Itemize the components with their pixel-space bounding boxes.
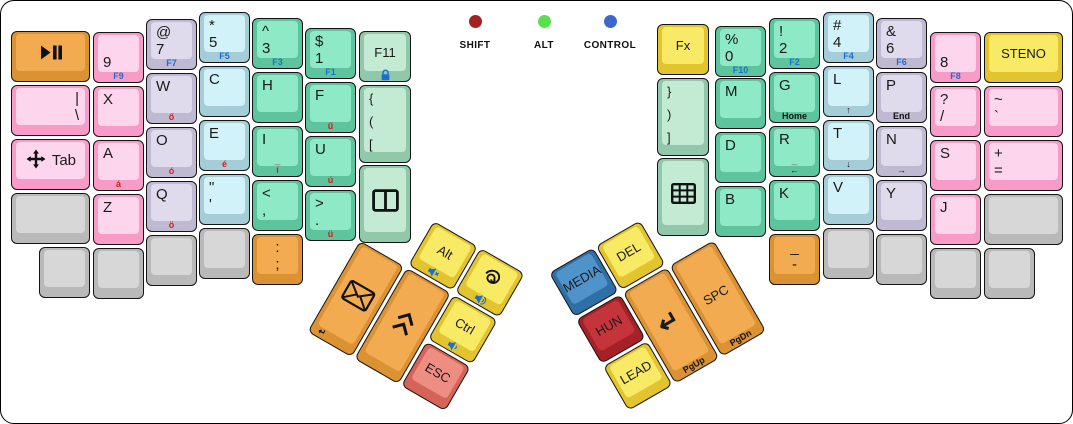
key-blank-rb5-face (989, 251, 1030, 288)
key-fx-legend: Fx (676, 38, 690, 53)
key-star-5-line-0: * (209, 17, 245, 34)
key-ctrl-legend: Ctrl (452, 315, 477, 338)
key-caret-3-front-legend: F3 (253, 58, 302, 68)
key-less-comma-legend: <, (257, 183, 298, 219)
key-h-legend: H (257, 75, 298, 94)
key-n-legend: N (881, 129, 922, 148)
key-hun-legend: HUN (593, 312, 625, 339)
key-at-7-line-0: @ (156, 24, 192, 41)
key-colon-semicolon-face: :; (257, 237, 298, 274)
key-g-line-0: G (779, 77, 815, 94)
key-y[interactable]: Y (876, 180, 927, 231)
key-p-front-legend: End (877, 112, 926, 122)
key-x-legend: X (98, 89, 139, 108)
key-a-legend: A (98, 143, 139, 162)
key-d-face: D (720, 135, 761, 172)
key-caret-3-face: ^3 (257, 21, 298, 58)
key-8-line-0 (940, 37, 976, 54)
key-greater-period-front-legend: ü (306, 230, 355, 240)
key-at-7-line-1: 7 (156, 41, 192, 58)
key-j[interactable]: J (930, 194, 981, 245)
key-y-face: Y (881, 183, 922, 220)
key-l-line-0: L (833, 71, 869, 88)
key-r[interactable]: R_← (769, 126, 820, 177)
key-quote-legend: "' (204, 177, 245, 213)
key-k[interactable]: K (769, 180, 820, 231)
key-percent-0[interactable]: %0F10 (715, 26, 766, 77)
key-f-front-legend: ű (306, 122, 355, 132)
key-pipe-backslash-legend: |\ (16, 88, 85, 124)
key-l[interactable]: L↑ (823, 66, 874, 117)
key-tab[interactable]: Tab (11, 139, 90, 190)
key-blank-right-mod-face (989, 197, 1058, 234)
key-x-line-0: X (103, 91, 139, 108)
key-blank-lb1[interactable] (39, 247, 90, 298)
key-m[interactable]: M (715, 78, 766, 129)
key-o-front-legend: ó (147, 167, 196, 177)
key-hash-4-face: #4 (828, 15, 869, 52)
key-close-brackets-line-1: ) (667, 107, 704, 130)
key-q-line-0: Q (156, 186, 192, 203)
key-z-line-0: Z (103, 199, 139, 216)
key-enter-line-0: ↵ (656, 310, 682, 334)
indicator-control: CONTROL (570, 15, 650, 51)
key-caret-3-line-1: 3 (262, 40, 298, 57)
key-open-brackets-line-1: ( (369, 114, 406, 137)
key-b-legend: B (720, 189, 761, 208)
key-a-line-0: A (103, 145, 139, 162)
key-underscore-dash-line-0: _ (774, 239, 815, 256)
key-l-face: L (828, 69, 869, 106)
key-f[interactable]: Fű (305, 82, 356, 133)
key-underscore-dash[interactable]: _- (769, 234, 820, 285)
key-alt-legend: Alt (435, 242, 456, 263)
key-percent-0-face: %0 (720, 29, 761, 66)
key-underscore-dash-face: _- (774, 237, 815, 274)
key-underscore-dash-legend: _- (774, 237, 815, 273)
key-n[interactable]: N→ (876, 126, 927, 177)
key-m-line-0: M (725, 83, 761, 100)
key-close-brackets[interactable]: })] (657, 78, 709, 156)
key-a[interactable]: Aá (93, 140, 144, 191)
key-d-legend: D (720, 135, 761, 154)
key-y-line-0: Y (886, 185, 922, 202)
key-z[interactable]: Z (93, 194, 144, 245)
key-u-line-0: U (315, 141, 351, 158)
key-blank-left-mod[interactable] (11, 193, 90, 244)
key-8[interactable]: 8F8 (930, 32, 981, 83)
play-pause-icon (16, 34, 85, 71)
key-v-line-0: V (833, 179, 869, 196)
key-enter-legend: ↵ (656, 310, 682, 334)
key-z-face: Z (98, 197, 139, 234)
key-c-line-0: C (209, 71, 245, 88)
key-dollar-1-front-legend: F1 (306, 68, 355, 78)
key-v[interactable]: V (823, 174, 874, 225)
key-pipe-backslash-line-0: | (16, 90, 79, 107)
key-8-front-legend: F8 (931, 72, 980, 82)
key-c-face: C (204, 69, 245, 106)
key-r-face: R_ (774, 129, 815, 166)
key-plus-equals-line-1: = (994, 162, 1058, 179)
key-steno-legend: STENO (1001, 46, 1046, 61)
key-colon-semicolon-line-0: : (257, 239, 298, 256)
key-c[interactable]: C (199, 66, 250, 117)
key-r-hold-legend: _ (774, 157, 815, 165)
key-s-face: S (935, 143, 976, 180)
key-percent-0-front-legend: F10 (716, 66, 765, 76)
key-question-slash[interactable]: ?/ (930, 86, 981, 137)
indicator-control-label: CONTROL (570, 40, 650, 51)
key-tilde-backtick-line-0: ~ (994, 91, 1058, 108)
alt-led-icon (538, 15, 551, 28)
key-o-face: O (151, 130, 192, 167)
key-amp-6-face: &6 (881, 21, 922, 58)
key-quote-line-1: ' (209, 196, 245, 213)
key-w-legend: W (151, 76, 192, 95)
key-blank-right-mod[interactable] (984, 194, 1063, 245)
key-greater-period-legend: >. (310, 193, 351, 229)
key-steno[interactable]: STENO (984, 32, 1063, 83)
key-g-face: G (774, 75, 815, 112)
key-del-line-0: DEL (614, 239, 643, 265)
key-underscore-dash-line-1: - (774, 256, 815, 273)
key-f-line-0: F (315, 87, 351, 104)
key-blank-lb3[interactable] (146, 235, 197, 286)
key-q-legend: Q (151, 184, 192, 203)
key-z-legend: Z (98, 197, 139, 216)
key-star-5-face: *5 (204, 15, 245, 52)
key-k-face: K (774, 183, 815, 220)
key-dollar-1-line-0: $ (315, 33, 351, 50)
key-greater-period-line-1: . (315, 212, 351, 229)
key-percent-0-line-1: 0 (725, 48, 761, 65)
key-at-7[interactable]: @7F7 (146, 19, 197, 70)
key-v-face: V (828, 177, 869, 214)
key-i-face: I_ (257, 129, 298, 166)
key-blank-lb1-face (44, 250, 85, 287)
key-steno-face: STENO (989, 35, 1058, 72)
key-blank-lb2[interactable] (93, 248, 144, 299)
key-star-5[interactable]: *5F5 (199, 12, 250, 63)
key-blank-rb5[interactable] (984, 248, 1035, 299)
key-plus-equals-legend: += (989, 143, 1058, 179)
key-plus-equals-line-0: + (994, 145, 1058, 162)
key-lead-line-0: LEAD (617, 357, 654, 387)
key-hash-4-line-0: # (833, 17, 869, 34)
key-e-legend: E (204, 123, 245, 142)
key-question-slash-face: ?/ (935, 89, 976, 126)
key-less-comma-line-0: < (262, 185, 298, 202)
key-b-face: B (720, 189, 761, 226)
key-open-brackets[interactable]: {([ (359, 85, 411, 163)
key-g-front-legend: Home (770, 112, 819, 122)
key-blank-rb3[interactable] (876, 234, 927, 285)
key-v-legend: V (828, 177, 869, 196)
key-e-front-legend: é (200, 160, 249, 170)
key-r-front-legend: ← (770, 166, 819, 176)
key-n-line-0: N (886, 131, 922, 148)
key-caret-3-legend: ^3 (257, 21, 298, 57)
key-u[interactable]: Uú (305, 136, 356, 187)
key-excl-2-face: !2 (774, 21, 815, 58)
key-d[interactable]: D (715, 132, 766, 183)
key-q-face: Q (151, 184, 192, 221)
key-f-legend: F (310, 85, 351, 104)
key-h-face: H (257, 75, 298, 112)
key-star-5-line-1: 5 (209, 34, 245, 51)
key-9-legend: 9 (98, 35, 139, 71)
key-9-face: 9 (98, 35, 139, 72)
key-amp-6[interactable]: &6F6 (876, 18, 927, 69)
key-fx[interactable]: Fx (657, 24, 709, 75)
key-k-line-0: K (779, 185, 815, 202)
key-c-legend: C (204, 69, 245, 88)
key-x[interactable]: X (93, 86, 144, 137)
key-amp-6-line-0: & (886, 23, 922, 40)
key-question-slash-line-1: / (940, 108, 976, 125)
key-quote-line-0: " (209, 179, 245, 196)
key-g-legend: G (774, 75, 815, 94)
key-blank-rb3-face (881, 237, 922, 274)
key-less-comma-line-1: , (262, 202, 298, 219)
key-m-legend: M (720, 81, 761, 100)
key-star-5-front-legend: F5 (200, 52, 249, 62)
key-question-slash-line-0: ? (940, 91, 976, 108)
key-j-face: J (935, 197, 976, 234)
key-p-face: P (881, 75, 922, 112)
key-blank-lb4-face (204, 231, 245, 268)
key-9[interactable]: 9F9 (93, 32, 144, 83)
key-w-line-0: W (156, 78, 192, 95)
key-hash-4-front-legend: F4 (824, 52, 873, 62)
move-icon (25, 148, 47, 174)
key-r-legend: R (774, 129, 815, 148)
key-8-line-1: 8 (940, 54, 976, 71)
key-esc-legend: ESC (423, 360, 454, 386)
key-tab-label: Tab (52, 152, 76, 169)
key-y-legend: Y (881, 183, 922, 202)
key-e[interactable]: Eé (199, 120, 250, 171)
key-b[interactable]: B (715, 186, 766, 237)
key-caret-3[interactable]: ^3F3 (252, 18, 303, 69)
shift-led-icon (469, 15, 482, 28)
key-8-face: 8 (935, 35, 976, 72)
key-p-line-0: P (886, 77, 922, 94)
key-star-5-legend: *5 (204, 15, 245, 51)
key-greater-period[interactable]: >.ü (305, 190, 356, 241)
key-h-line-0: H (262, 77, 298, 94)
key-media-line-0: MEDIA (560, 262, 603, 296)
key-less-comma[interactable]: <, (252, 180, 303, 231)
key-ctrl-line-0: Ctrl (452, 315, 477, 338)
key-amp-6-legend: &6 (881, 21, 922, 57)
key-i[interactable]: I_í (252, 126, 303, 177)
key-g[interactable]: GHome (769, 72, 820, 123)
key-j-line-0: J (940, 199, 976, 216)
key-t-face: T (828, 123, 869, 160)
key-blank-left-mod-face (16, 196, 85, 233)
key-at-7-front-legend: F7 (147, 59, 196, 69)
key-tilde-backtick-legend: ~` (989, 89, 1058, 125)
key-colon-semicolon-legend: :; (257, 237, 298, 273)
key-blank-rb4[interactable] (930, 248, 981, 299)
key-t-front-legend: ↓ (824, 160, 873, 170)
key-e-line-0: E (209, 125, 245, 142)
key-b-line-0: B (725, 191, 761, 208)
key-close-brackets-face: })] (662, 81, 704, 145)
key-l-front-legend: ↑ (824, 106, 873, 116)
key-dollar-1[interactable]: $1F1 (305, 28, 356, 79)
key-colon-semicolon[interactable]: :; (252, 234, 303, 285)
lock-icon (360, 70, 410, 81)
key-p[interactable]: PEnd (876, 72, 927, 123)
key-hash-4[interactable]: #4F4 (823, 12, 874, 63)
key-h[interactable]: H (252, 72, 303, 123)
key-o[interactable]: Oó (146, 127, 197, 178)
key-quote[interactable]: "' (199, 174, 250, 225)
key-x-face: X (98, 89, 139, 126)
key-media-legend: MEDIA (560, 262, 603, 296)
key-blank-lb2-face (98, 251, 139, 288)
key-quote-face: "' (204, 177, 245, 214)
key-s-legend: S (935, 143, 976, 162)
key-tab-face: Tab (16, 142, 85, 179)
key-blank-rb4-face (935, 251, 976, 288)
key-i-front-legend: í (253, 166, 302, 176)
key-blank-lb3-face (151, 238, 192, 275)
key-f11-legend: F11 (374, 45, 395, 60)
key-f11-face: F11 (364, 34, 406, 71)
key-k-legend: K (774, 183, 815, 202)
key-w-face: W (151, 76, 192, 113)
key-i-hold-legend: _ (257, 157, 298, 165)
key-o-line-0: O (156, 132, 192, 149)
key-less-comma-face: <, (257, 183, 298, 220)
key-open-brackets-face: {([ (364, 88, 406, 152)
key-hash-4-line-1: 4 (833, 34, 869, 51)
indicator-shift: SHIFT (435, 15, 515, 51)
key-excl-2-legend: !2 (774, 21, 815, 57)
key-u-front-legend: ú (306, 176, 355, 186)
key-at-7-legend: @7 (151, 22, 192, 58)
key-m-face: M (720, 81, 761, 118)
key-colon-semicolon-line-1: ; (257, 256, 298, 273)
key-close-brackets-line-0: } (667, 84, 704, 107)
key-w-front-legend: ő (147, 113, 196, 123)
key-i-legend: I (257, 129, 298, 148)
key-greater-period-line-0: > (315, 195, 351, 212)
key-excl-2[interactable]: !2F2 (769, 18, 820, 69)
key-blank-lb4[interactable] (199, 228, 250, 279)
key-t[interactable]: T↓ (823, 120, 874, 171)
key-a-face: A (98, 143, 139, 180)
key-pipe-backslash-line-1: \ (16, 107, 79, 124)
key-greater-period-face: >. (310, 193, 351, 230)
key-space-legend: SPC (701, 282, 732, 308)
key-dollar-1-line-1: 1 (315, 50, 351, 67)
key-a-front-legend: á (94, 180, 143, 190)
key-tilde-backtick-line-1: ` (994, 108, 1058, 125)
key-amp-6-front-legend: F6 (877, 58, 926, 68)
key-dollar-1-face: $1 (310, 31, 351, 68)
key-open-brackets-line-0: { (369, 91, 406, 114)
key-8-legend: 8 (935, 35, 976, 71)
key-t-legend: T (828, 123, 869, 142)
indicator-shift-label: SHIFT (435, 40, 515, 51)
key-excl-2-line-1: 2 (779, 40, 815, 57)
key-excl-2-line-0: ! (779, 23, 815, 40)
key-f-face: F (310, 85, 351, 122)
key-del-legend: DEL (614, 239, 643, 265)
key-i-line-0: I (262, 131, 298, 148)
key-open-brackets-legend: {([ (364, 88, 406, 160)
control-led-icon (604, 15, 617, 28)
key-u-face: U (310, 139, 351, 176)
key-media-face: MEDIA (555, 253, 609, 306)
key-d-line-0: D (725, 137, 761, 154)
key-pipe-backslash[interactable]: |\ (11, 85, 90, 136)
key-n-front-legend: → (877, 166, 926, 176)
key-9-line-1: 9 (103, 54, 139, 71)
key-u-legend: U (310, 139, 351, 158)
key-e-face: E (204, 123, 245, 160)
key-fx-line-0: Fx (676, 38, 690, 53)
key-play-pause[interactable] (11, 31, 90, 82)
key-p-legend: P (881, 75, 922, 94)
key-r-line-0: R (779, 131, 815, 148)
key-plus-equals[interactable]: += (984, 140, 1063, 191)
key-j-legend: J (935, 197, 976, 216)
key-percent-0-line-0: % (725, 31, 761, 48)
key-fx-face: Fx (662, 27, 704, 64)
key-amp-6-line-1: 6 (886, 40, 922, 57)
key-q-front-legend: ö (147, 221, 196, 231)
key-at-7-face: @7 (151, 22, 192, 59)
key-tilde-backtick-face: ~` (989, 89, 1058, 126)
key-close-brackets-line-2: ] (667, 130, 704, 153)
key-blank-rb2-face (828, 231, 869, 268)
key-s-line-0: S (940, 145, 976, 162)
key-9-front-legend: F9 (94, 72, 143, 82)
key-alt-line-0: Alt (435, 242, 456, 263)
key-del-face: DEL (602, 226, 656, 279)
key-play-pause-face (16, 34, 85, 71)
key-steno-line-0: STENO (1001, 46, 1046, 61)
key-question-slash-legend: ?/ (935, 89, 976, 125)
key-l-legend: L (828, 69, 869, 88)
key-hash-4-legend: #4 (828, 15, 869, 51)
key-blank-rb2[interactable] (823, 228, 874, 279)
key-space-line-0: SPC (701, 282, 732, 308)
key-hun-line-0: HUN (593, 312, 625, 339)
key-q[interactable]: Qö (146, 181, 197, 232)
key-esc-line-0: ESC (423, 360, 454, 386)
key-close-brackets-legend: })] (662, 81, 704, 153)
key-tilde-backtick[interactable]: ~` (984, 86, 1063, 137)
key-caret-3-line-0: ^ (262, 23, 298, 40)
key-s[interactable]: S (930, 140, 981, 191)
key-w[interactable]: Wő (146, 73, 197, 124)
key-n-face: N (881, 129, 922, 166)
key-open-brackets-line-2: [ (369, 137, 406, 160)
key-9-line-0 (103, 37, 139, 54)
key-plus-equals-face: += (989, 143, 1058, 180)
key-t-line-0: T (833, 125, 869, 142)
key-f11[interactable]: F11 (359, 31, 411, 82)
key-excl-2-front-legend: F2 (770, 58, 819, 68)
key-o-legend: O (151, 130, 192, 149)
